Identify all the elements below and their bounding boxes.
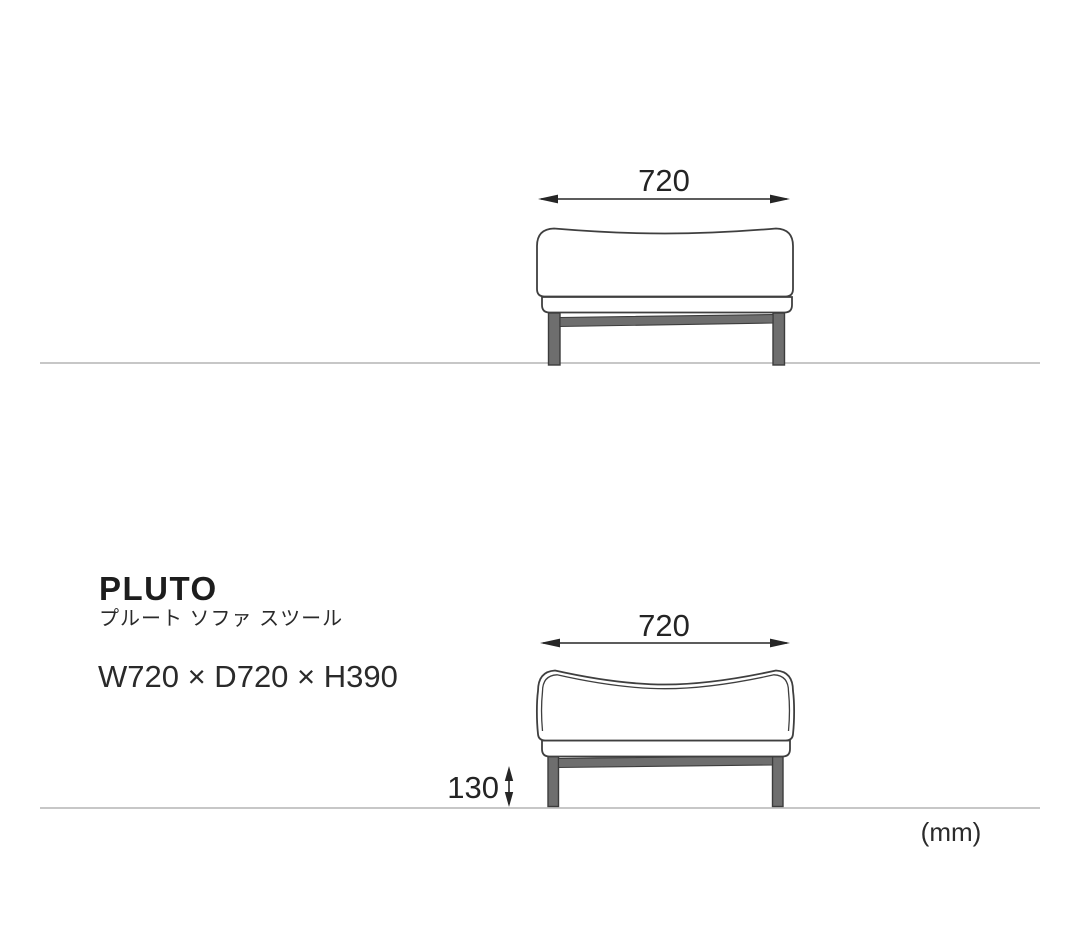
side-leg-right (773, 757, 784, 807)
front-width-arrowhead-left (538, 195, 558, 204)
front-leg-right (773, 313, 785, 365)
side-view-drawing: 720 130 (40, 608, 1040, 808)
side-cushion (537, 671, 794, 741)
front-seat-frame (542, 297, 792, 313)
floor-clearance-dimension: 130 (447, 766, 513, 807)
dimension-diagram: 720 720 (0, 0, 1080, 928)
floor-clearance-arrowhead-bottom (505, 792, 513, 807)
unit-label: (mm) (921, 817, 982, 847)
product-size-text: W720 × D720 × H390 (98, 661, 398, 692)
side-width-dimension: 720 (540, 608, 790, 647)
side-stretcher-rail (559, 756, 773, 768)
side-width-arrowhead-right (770, 639, 790, 648)
front-width-arrowhead-right (770, 195, 790, 204)
front-stretcher-rail (560, 315, 773, 327)
product-name: PLUTO (99, 572, 218, 605)
side-seat-frame (542, 741, 790, 757)
side-leg-left (548, 757, 559, 807)
front-width-dimension-label: 720 (638, 163, 690, 198)
side-width-dimension-label: 720 (638, 608, 690, 643)
floor-clearance-arrowhead-top (505, 766, 513, 781)
front-cushion (537, 229, 793, 297)
product-spec-sheet: 720 720 (0, 0, 1080, 928)
floor-clearance-label: 130 (447, 770, 499, 805)
product-subtitle: プルート ソファ スツール (99, 607, 343, 631)
front-width-dimension: 720 (538, 163, 790, 203)
front-leg-left (549, 313, 561, 365)
side-width-arrowhead-left (540, 639, 560, 648)
front-view-drawing: 720 (40, 163, 1040, 365)
